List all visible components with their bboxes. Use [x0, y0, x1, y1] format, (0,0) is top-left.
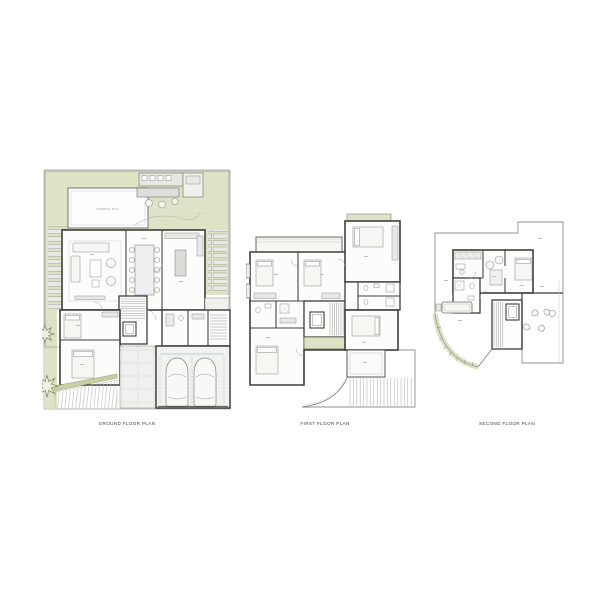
second-floor-plan-drawing [430, 218, 566, 404]
stair-core [119, 296, 147, 344]
armchair [107, 259, 116, 268]
stepping-stones-right [208, 230, 227, 292]
stool [146, 200, 153, 207]
shower [386, 298, 394, 306]
stool [172, 199, 178, 205]
kitchen-counter [165, 233, 199, 239]
closet [102, 312, 118, 317]
car [166, 358, 188, 407]
armchair [107, 277, 116, 286]
ground-floor-caption: GROUND FLOOR PLAN [72, 421, 182, 426]
sink [468, 296, 474, 300]
ground-floor-plan-drawing: SWIMMING POOL [42, 168, 232, 412]
sofa [73, 243, 109, 252]
car [194, 358, 216, 407]
swimming-pool: SWIMMING POOL [68, 188, 148, 228]
bar-counter [137, 188, 179, 197]
sink [265, 304, 271, 308]
first-floor-caption: FIRST FLOOR PLAN [270, 421, 380, 426]
tv-unit [75, 296, 105, 300]
dining-table [135, 245, 154, 295]
second-floor-caption: SECOND FLOOR PLAN [452, 421, 562, 426]
roof-planter [347, 214, 391, 221]
toilet [256, 307, 260, 313]
armchair [495, 256, 503, 264]
first-floor-plan-drawing [246, 206, 422, 412]
courtyard-patio [120, 346, 156, 408]
stair-core [492, 300, 522, 349]
north-balcony [256, 237, 342, 252]
stair-core [304, 301, 345, 337]
pool-label: SWIMMING POOL [97, 208, 120, 211]
shower [386, 284, 394, 292]
wardrobe [392, 226, 398, 260]
chair [460, 270, 464, 274]
toilet [364, 285, 368, 291]
armchair [486, 261, 494, 269]
closet [322, 293, 340, 299]
coffee-table [90, 260, 101, 277]
toilet [470, 283, 474, 289]
bathtub [442, 302, 472, 313]
vanity [280, 318, 296, 323]
kitchen-island [175, 250, 186, 276]
sofa [71, 256, 80, 282]
garage [156, 346, 230, 408]
planter [304, 337, 345, 349]
balcony [347, 350, 385, 377]
toilet [364, 299, 368, 305]
toilet [179, 316, 184, 321]
tub-step [436, 304, 441, 311]
plan-sheet: SWIMMING POOL [0, 0, 600, 600]
sink [374, 284, 379, 288]
laundry-counter [166, 314, 174, 326]
closet [254, 293, 276, 299]
bedroom-wing [60, 310, 120, 385]
sofa [490, 270, 502, 285]
stool [159, 201, 166, 208]
desk [456, 264, 465, 269]
